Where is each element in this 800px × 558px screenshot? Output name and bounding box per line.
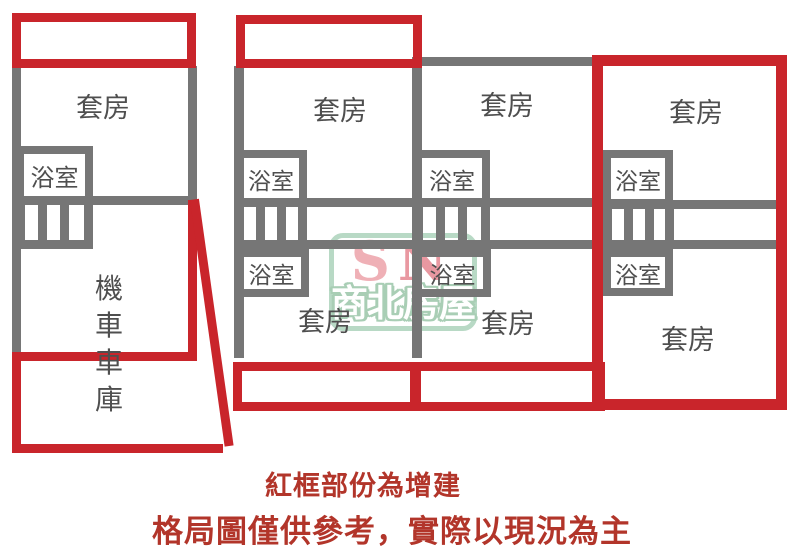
stairs-bar bbox=[458, 207, 467, 240]
stairs-bar bbox=[235, 207, 244, 240]
left-unit-wall-right bbox=[188, 66, 197, 203]
stairs-bar bbox=[481, 207, 490, 240]
stairs-bar bbox=[277, 207, 286, 240]
legend-line2: 格局圖僅供參考，實際以現況為主 bbox=[0, 506, 784, 551]
stairs-bar bbox=[16, 205, 25, 240]
middle-mid-wall-lower bbox=[234, 240, 597, 249]
left-balcony-addition-outline bbox=[12, 13, 196, 68]
middle-col2-bathroom-bottom-box: 浴室 bbox=[414, 249, 491, 297]
middle-col1-bathroom-top-label: 浴室 bbox=[248, 162, 294, 196]
middle-rear-addition-divider bbox=[410, 362, 421, 411]
stairs-bar bbox=[436, 207, 445, 240]
legend-line1: 紅框部份為增建 bbox=[0, 464, 726, 503]
middle-balcony-addition-outline bbox=[236, 15, 422, 68]
stairs-bar bbox=[414, 207, 423, 240]
garage-char: 車 bbox=[94, 307, 124, 344]
garage-char: 庫 bbox=[94, 381, 124, 418]
stairs-bar bbox=[38, 205, 47, 240]
stairs-bar bbox=[256, 207, 265, 240]
floor-plan: SN 商北房屋 浴室 浴室 浴室 浴室 浴室 bbox=[0, 0, 800, 558]
stairs-bar bbox=[84, 205, 93, 240]
garage-char: 機 bbox=[94, 270, 124, 307]
middle-col1-suite-bottom-label: 套房 bbox=[275, 308, 375, 338]
left-bathroom-label: 浴室 bbox=[31, 158, 79, 193]
middle-col1-bathroom-bottom-label: 浴室 bbox=[249, 256, 295, 290]
middle-col1-bathroom-bottom-box: 浴室 bbox=[234, 249, 309, 297]
middle-mid-wall-upper bbox=[234, 198, 597, 207]
garage-char: 車 bbox=[94, 344, 124, 381]
right-suite-top-label: 套房 bbox=[646, 99, 746, 129]
middle-col2-bathroom-bottom-label: 浴室 bbox=[430, 256, 476, 290]
middle-col2-top-wall bbox=[412, 57, 597, 66]
middle-col1-suite-top-label: 套房 bbox=[290, 97, 390, 127]
stairs-bar bbox=[60, 205, 69, 240]
middle-col2-bathroom-top-label: 浴室 bbox=[429, 162, 475, 196]
left-suite-label: 套房 bbox=[53, 94, 153, 124]
middle-col2-suite-bottom-label: 套房 bbox=[458, 310, 558, 340]
left-mid-wall bbox=[12, 196, 197, 205]
stairs-bar bbox=[298, 207, 307, 240]
right-suite-bottom-label: 套房 bbox=[638, 326, 738, 356]
left-garage-label: 機 車 車 庫 bbox=[94, 270, 124, 418]
left-addition-wall-bottom bbox=[12, 444, 223, 453]
middle-col2-suite-top-label: 套房 bbox=[457, 92, 557, 122]
stairs-base bbox=[16, 240, 93, 249]
left-addition-wall-left bbox=[12, 353, 21, 453]
